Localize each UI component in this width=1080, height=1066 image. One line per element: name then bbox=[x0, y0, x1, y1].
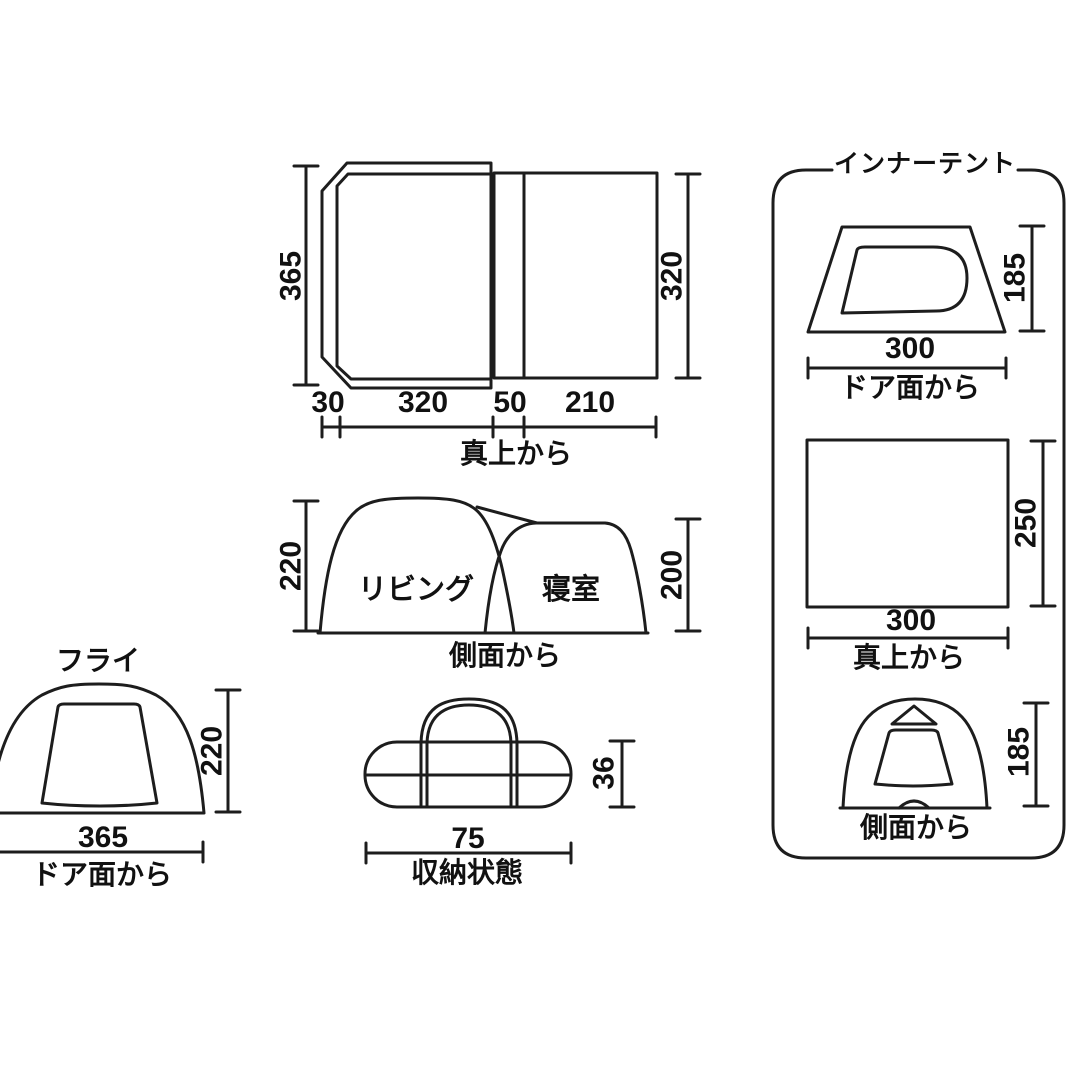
top-view-dim-210: 210 bbox=[565, 386, 615, 419]
side-view-bedroom-label: 寝室 bbox=[542, 572, 600, 606]
fly-view-label: ドア面から bbox=[32, 859, 172, 890]
fly-view-title: フライ bbox=[56, 645, 140, 676]
top-view-dim-320-right: 320 bbox=[656, 251, 689, 301]
side-view-label: 側面から bbox=[448, 640, 561, 671]
storage-view-label: 収納状態 bbox=[411, 856, 523, 888]
fly-dim-220: 220 bbox=[196, 726, 229, 776]
top-view-dim-365: 365 bbox=[275, 251, 308, 301]
storage-dim-75: 75 bbox=[451, 822, 484, 855]
inner-top-dim-250: 250 bbox=[1010, 498, 1043, 548]
inner-tent-top-view: 250 300 真上から bbox=[807, 440, 1055, 673]
fly-door-outline bbox=[42, 704, 157, 806]
inner-tent-door-view: 185 300 ドア面から bbox=[808, 226, 1044, 403]
inner-top-dim-300: 300 bbox=[886, 604, 936, 637]
inner-door-dim-185: 185 bbox=[999, 253, 1032, 303]
inner-top-view-rect bbox=[807, 440, 1008, 607]
inner-top-view-label: 真上から bbox=[853, 642, 965, 673]
top-view-label: 真上から bbox=[460, 438, 572, 469]
inner-side-view-dome bbox=[843, 699, 987, 808]
storage-view-drawing: 36 75 収納状態 bbox=[365, 699, 634, 888]
top-view-dim-line-bottom bbox=[322, 417, 656, 437]
inner-side-view-door bbox=[875, 730, 952, 786]
inner-door-view-door bbox=[842, 247, 967, 313]
side-view-drawing: 220 200 リビング 寝室 側面から bbox=[275, 498, 701, 671]
side-view-living-dome bbox=[320, 498, 514, 633]
storage-dim-36: 36 bbox=[588, 756, 621, 789]
side-view-dim-200: 200 bbox=[656, 550, 689, 600]
side-view-dim-220: 220 bbox=[275, 541, 308, 591]
top-view-dim-50: 50 bbox=[493, 386, 526, 419]
inner-side-view-vent bbox=[892, 706, 936, 724]
storage-bag-handle bbox=[421, 699, 517, 743]
tent-spec-diagram: 365 320 30 320 50 210 真上から 220 200 リビング … bbox=[0, 0, 1080, 1066]
inner-door-dim-300: 300 bbox=[885, 332, 935, 365]
top-view-dim-320-bottom: 320 bbox=[398, 386, 448, 419]
inner-door-view-label: ドア面から bbox=[840, 372, 980, 403]
side-view-living-label: リビング bbox=[358, 573, 474, 606]
fly-view-drawing: フライ 220 365 ドア面から bbox=[0, 645, 240, 890]
top-view-fly-outline bbox=[322, 163, 491, 388]
inner-side-view-label: 側面から bbox=[859, 812, 972, 843]
inner-side-dim-185: 185 bbox=[1003, 727, 1036, 777]
inner-door-view-outline bbox=[808, 227, 1005, 332]
top-view-bedroom-rect bbox=[494, 173, 657, 378]
inner-tent-panel: インナーテント 185 300 ドア面から 250 300 真上から bbox=[773, 150, 1064, 858]
inner-tent-title: インナーテント bbox=[834, 150, 1016, 178]
top-view-drawing: 365 320 30 320 50 210 真上から bbox=[275, 163, 701, 469]
top-view-dim-30: 30 bbox=[311, 386, 344, 419]
fly-dim-365: 365 bbox=[78, 821, 128, 854]
inner-tent-side-view: 185 側面から bbox=[840, 699, 1048, 843]
top-view-fly-inner-line bbox=[337, 174, 491, 379]
